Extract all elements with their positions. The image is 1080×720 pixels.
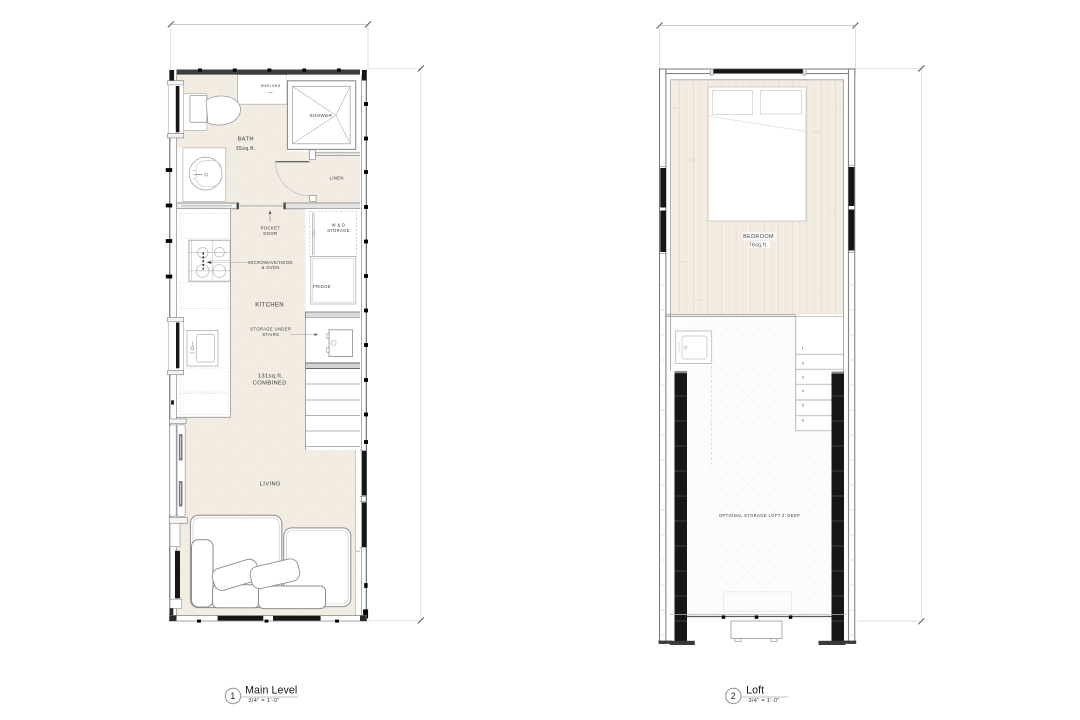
svg-text:KITCHEN: KITCHEN [255, 303, 284, 309]
svg-text:LINEN: LINEN [330, 176, 344, 181]
svg-text:STORAGE: STORAGE [327, 228, 350, 233]
svg-text:MICROWAVE/HOOD: MICROWAVE/HOOD [248, 260, 292, 265]
svg-text:LIVING: LIVING [260, 482, 281, 488]
svg-text:35sq.ft.: 35sq.ft. [236, 146, 256, 152]
svg-text:COMBINED: COMBINED [253, 380, 287, 386]
svg-text:3/4" = 1’-0": 3/4" = 1’-0" [249, 698, 280, 704]
svg-text:76sq.ft.: 76sq.ft. [749, 242, 768, 248]
svg-text:5: 5 [802, 404, 804, 408]
svg-text:OPTIONAL STORAGE LOFT 3’ DEEP: OPTIONAL STORAGE LOFT 3’ DEEP [719, 513, 800, 518]
svg-text:POCKET: POCKET [261, 226, 281, 231]
svg-text:W & D: W & D [332, 223, 346, 228]
svg-text:BATH: BATH [237, 137, 253, 143]
svg-text:STORAGE UNDER: STORAGE UNDER [250, 327, 291, 332]
svg-text:2: 2 [802, 361, 804, 365]
svg-text:3: 3 [802, 376, 804, 380]
svg-text:SHOWER: SHOWER [309, 113, 332, 118]
svg-text:1: 1 [230, 691, 235, 701]
svg-text:131sq.ft.: 131sq.ft. [258, 374, 283, 380]
svg-text:SHELVES: SHELVES [260, 83, 280, 88]
svg-text:2: 2 [731, 691, 736, 701]
svg-text:1: 1 [802, 347, 804, 351]
svg-text:Loft: Loft [746, 684, 764, 696]
svg-text:3/4" = 1’-0": 3/4" = 1’-0" [749, 698, 780, 704]
svg-text:Main Level: Main Level [245, 684, 297, 696]
svg-text:6: 6 [802, 418, 804, 422]
svg-text:DOOR: DOOR [263, 231, 277, 236]
svg-text:STAIRS: STAIRS [262, 332, 279, 337]
svg-text:BEDROOM: BEDROOM [743, 234, 774, 240]
svg-text:4: 4 [802, 389, 804, 393]
svg-text:& OVEN: & OVEN [262, 265, 280, 270]
svg-text:FRIDGE: FRIDGE [313, 284, 331, 289]
